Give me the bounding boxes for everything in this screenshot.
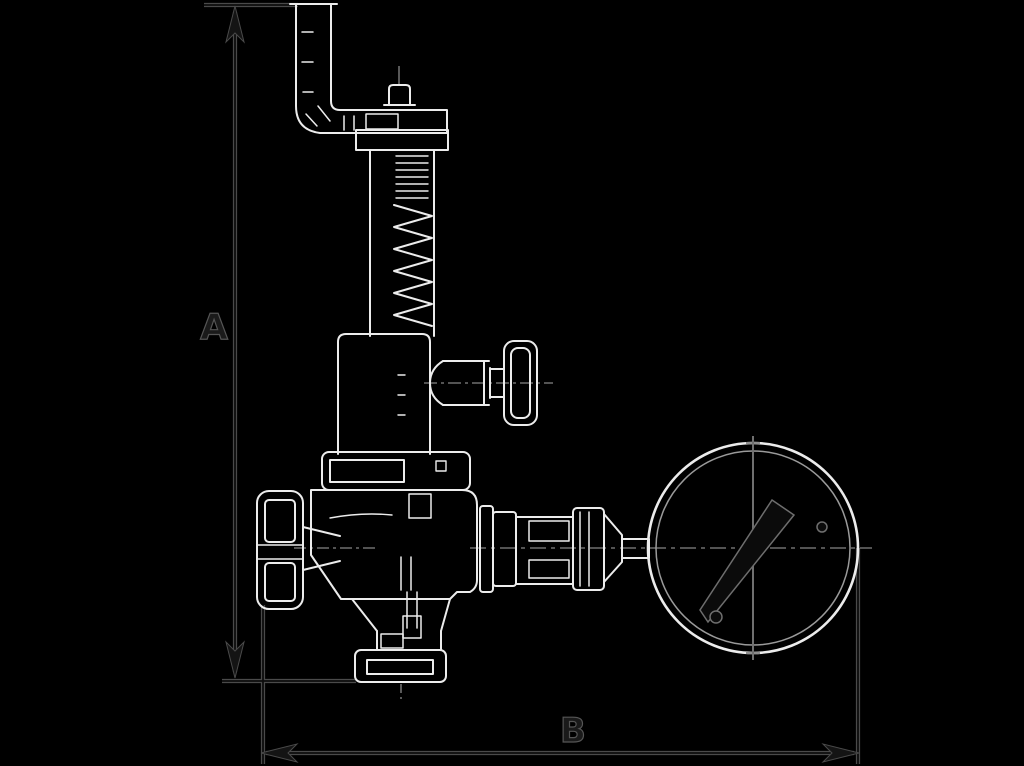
dimension-b-label: B: [560, 711, 586, 751]
drawing-canvas: A B: [0, 0, 1024, 766]
gauge-pivot-dot: [710, 611, 722, 623]
dimension-a-label: A: [200, 307, 228, 348]
valve-technical-drawing: A B: [0, 0, 1024, 766]
gauge-screw-dot: [817, 522, 827, 532]
stem-threads: [396, 156, 428, 198]
